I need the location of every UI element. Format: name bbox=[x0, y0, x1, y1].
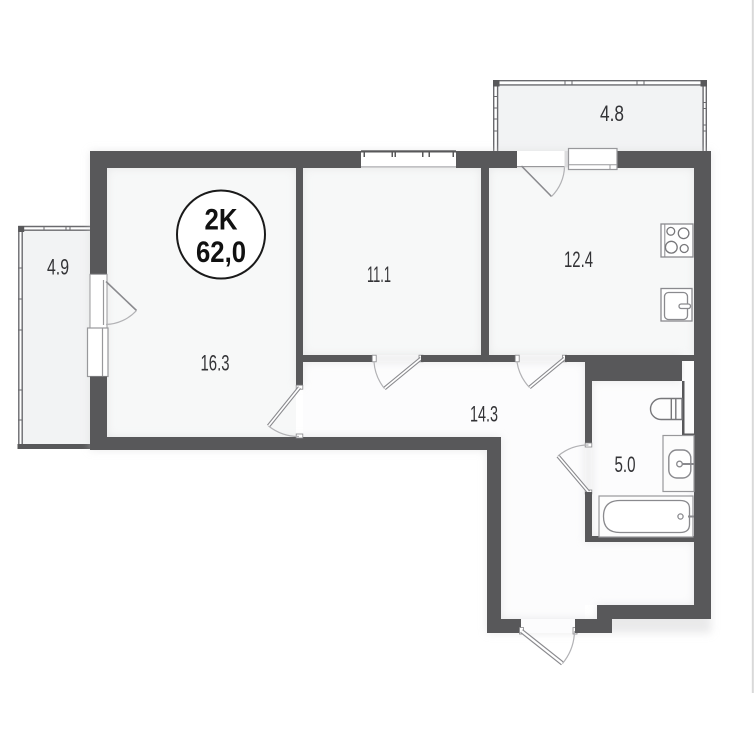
svg-text:11.1: 11.1 bbox=[367, 262, 391, 287]
svg-text:62,0: 62,0 bbox=[196, 236, 246, 269]
svg-text:16.3: 16.3 bbox=[201, 351, 230, 376]
svg-text:14.3: 14.3 bbox=[470, 402, 498, 427]
svg-text:12.4: 12.4 bbox=[564, 247, 593, 272]
svg-text:4.8: 4.8 bbox=[600, 101, 624, 126]
svg-text:2K: 2K bbox=[205, 204, 238, 237]
svg-text:5.0: 5.0 bbox=[615, 452, 636, 477]
svg-text:4.9: 4.9 bbox=[47, 255, 69, 280]
